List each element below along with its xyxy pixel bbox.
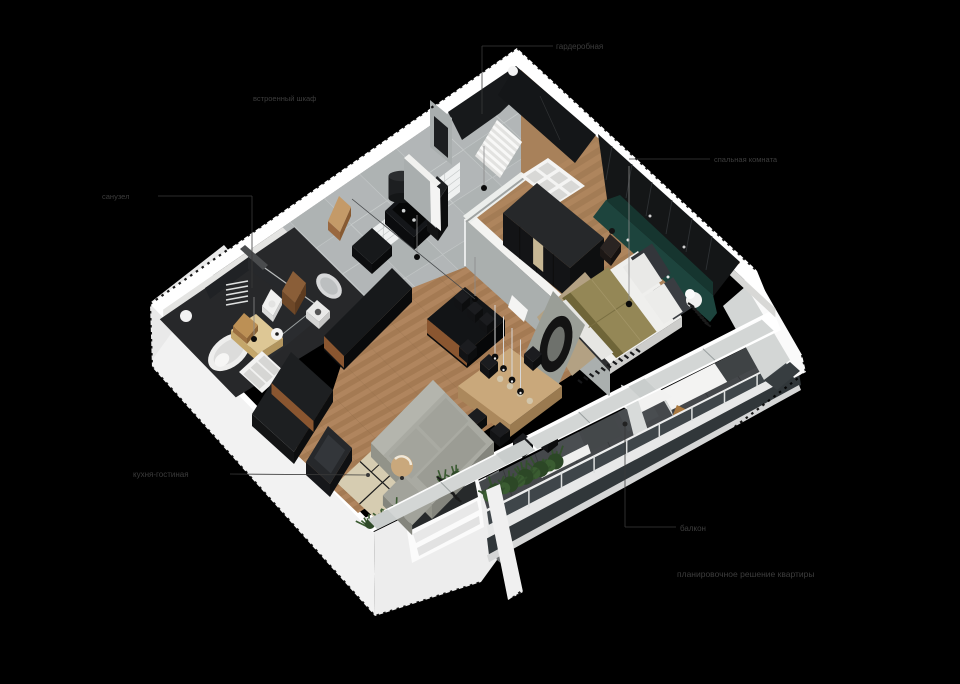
svg-text:санузел: санузел <box>102 192 129 201</box>
svg-text:спальная комната: спальная комната <box>714 155 778 164</box>
svg-text:кухня-гостиная: кухня-гостиная <box>133 470 189 479</box>
svg-text:планировочное решение квартиры: планировочное решение квартиры <box>677 569 815 579</box>
svg-text:встроенный шкаф: встроенный шкаф <box>253 94 316 103</box>
svg-text:гардеробная: гардеробная <box>556 42 603 51</box>
svg-text:балкон: балкон <box>680 524 706 533</box>
